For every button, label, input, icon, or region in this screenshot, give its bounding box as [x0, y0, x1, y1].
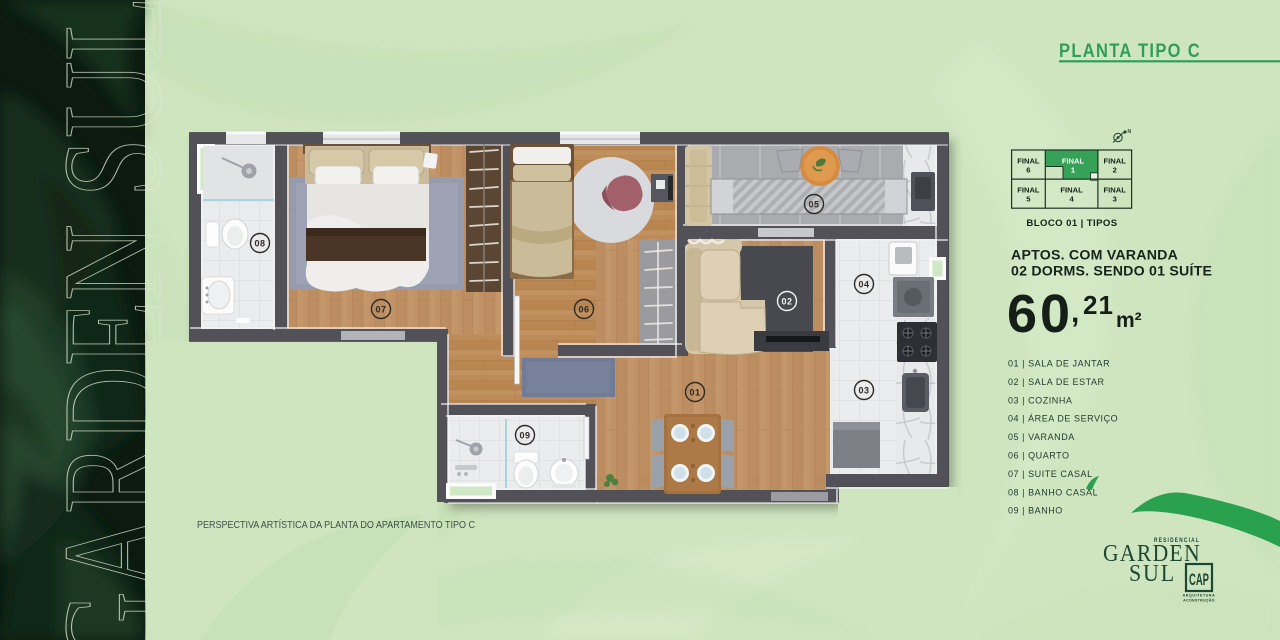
svg-text:05: 05	[808, 200, 819, 210]
svg-text:ARQUITETURA: ARQUITETURA	[1183, 594, 1216, 598]
svg-text:FINAL: FINAL	[1104, 186, 1127, 195]
svg-text:04 | ÁREA DE SERVIÇO: 04 | ÁREA DE SERVIÇO	[1008, 414, 1118, 424]
svg-text:APTOS. COM VARANDA: APTOS. COM VARANDA	[1011, 248, 1178, 264]
svg-text:09 | BANHO: 09 | BANHO	[1008, 506, 1063, 516]
svg-text:3: 3	[1113, 195, 1117, 204]
svg-text:01 | SALA DE JANTAR: 01 | SALA DE JANTAR	[1008, 359, 1110, 369]
svg-text:02: 02	[781, 297, 792, 307]
svg-text:02 | SALA DE ESTAR: 02 | SALA DE ESTAR	[1008, 377, 1105, 387]
svg-text:01: 01	[689, 388, 700, 398]
svg-text:07: 07	[375, 305, 386, 315]
svg-text:09: 09	[519, 431, 530, 441]
svg-text:N: N	[1128, 129, 1132, 135]
svg-text:FINAL: FINAL	[1017, 157, 1040, 166]
svg-text:2: 2	[1113, 166, 1117, 175]
svg-text:FINAL: FINAL	[1017, 186, 1040, 195]
svg-text:06 | QUARTO: 06 | QUARTO	[1008, 451, 1070, 461]
svg-text:08 | BANHO CASAL: 08 | BANHO CASAL	[1008, 487, 1098, 497]
svg-text:06: 06	[578, 305, 589, 315]
svg-text:08: 08	[254, 239, 265, 249]
svg-text:m²: m²	[1116, 309, 1142, 332]
svg-text:07 | SUITE CASAL: 07 | SUITE CASAL	[1008, 469, 1093, 479]
svg-text:CAP: CAP	[1189, 570, 1209, 589]
svg-text:FINAL: FINAL	[1104, 157, 1127, 166]
svg-text:BLOCO 01 | TIPOS: BLOCO 01 | TIPOS	[1026, 218, 1117, 229]
svg-text:05 | VARANDA: 05 | VARANDA	[1008, 432, 1075, 442]
svg-text:ACONSTRUÇÃO: ACONSTRUÇÃO	[1183, 598, 1215, 603]
svg-text:,: ,	[1071, 296, 1079, 329]
svg-text:6: 6	[1026, 166, 1030, 175]
svg-text:PLANTA TIPO C: PLANTA TIPO C	[1059, 40, 1201, 62]
svg-text:02 DORMS. SENDO 01 SUÍTE: 02 DORMS. SENDO 01 SUÍTE	[1011, 263, 1212, 280]
svg-text:21: 21	[1083, 290, 1114, 320]
svg-text:SUL: SUL	[1129, 561, 1176, 587]
svg-text:PERSPECTIVA ARTÍSTICA DA PLANT: PERSPECTIVA ARTÍSTICA DA PLANTA DO APART…	[197, 520, 475, 531]
svg-text:03: 03	[858, 386, 869, 396]
svg-text:FINAL: FINAL	[1062, 157, 1085, 166]
svg-text:60: 60	[1007, 284, 1073, 344]
svg-text:04: 04	[858, 280, 869, 290]
svg-text:FINAL: FINAL	[1060, 186, 1083, 195]
svg-text:03 | COZINHA: 03 | COZINHA	[1008, 395, 1072, 405]
